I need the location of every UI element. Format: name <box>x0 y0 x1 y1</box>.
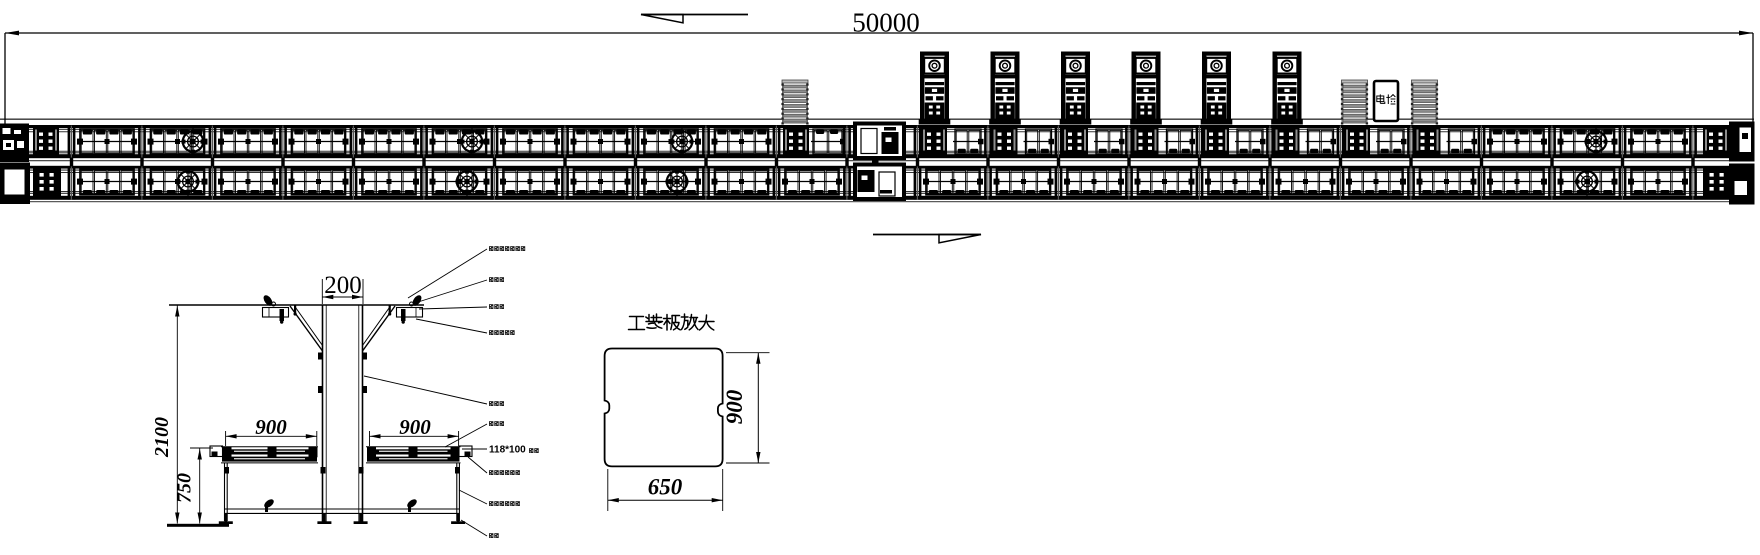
svg-text:900: 900 <box>722 389 747 424</box>
svg-text:750: 750 <box>174 473 196 503</box>
svg-text:118*100: 118*100 <box>489 445 526 456</box>
svg-text:650: 650 <box>648 475 683 500</box>
svg-text:900: 900 <box>399 415 431 439</box>
svg-text:50000: 50000 <box>852 8 920 38</box>
svg-text:2100: 2100 <box>151 417 173 458</box>
svg-text:900: 900 <box>255 415 287 439</box>
svg-text:200: 200 <box>324 272 362 299</box>
